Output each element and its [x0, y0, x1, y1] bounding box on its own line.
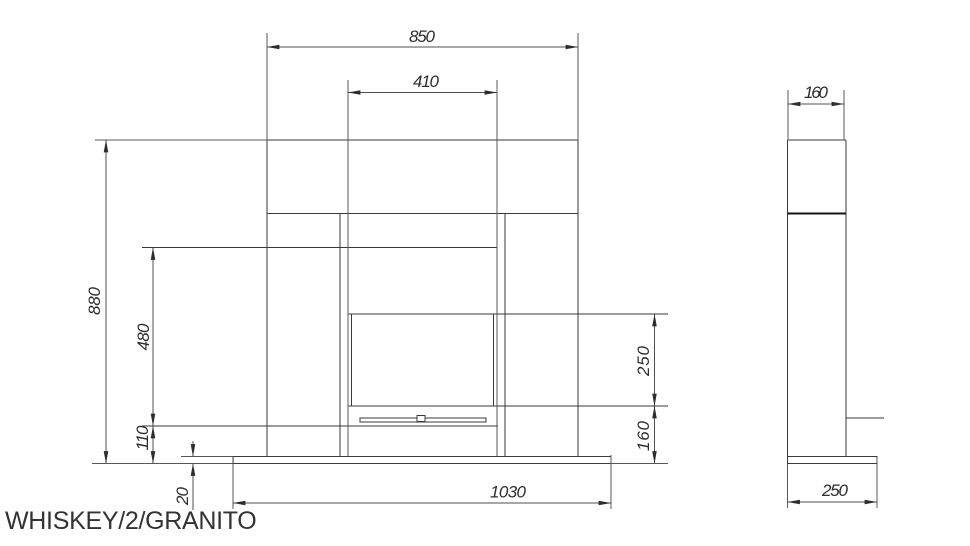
dim-shelf-width-label: 850: [409, 27, 436, 46]
dim-shelf-depth-label: 160: [804, 83, 829, 102]
dim-firebox-bottom-height-label: 160: [634, 420, 653, 451]
model-title: WHISKEY/2/GRANITO: [5, 507, 256, 536]
base-slab-side: [788, 457, 878, 464]
dim-firebox-width-label: 410: [413, 72, 440, 91]
base-slab-front: [233, 457, 611, 464]
technical-drawing-sheet: 850 410 880 480 110 20 1030 250 160 160 …: [0, 0, 970, 546]
dim-hearth-width-label: 1030: [490, 483, 527, 502]
dim-hearth-thickness-label: 20: [173, 486, 192, 506]
side-view-outline: [788, 140, 885, 464]
dim-recess-height-label: 480: [134, 323, 153, 351]
extension-lines: [92, 33, 877, 509]
burner-knob: [417, 416, 425, 422]
dimension-labels: 850 410 880 480 110 20 1030 250 160 160 …: [85, 27, 849, 506]
front-view-outline: [142, 140, 668, 464]
dim-hearth-depth-label: 250: [821, 481, 849, 500]
dim-hearth-clearance-label: 110: [133, 425, 152, 451]
dim-firebox-height-label: 250: [634, 345, 653, 377]
dimension-lines: [106, 47, 877, 510]
dim-overall-height-label: 880: [85, 286, 104, 315]
fireplace-dimension-drawing: 850 410 880 480 110 20 1030 250 160 160 …: [0, 0, 970, 546]
